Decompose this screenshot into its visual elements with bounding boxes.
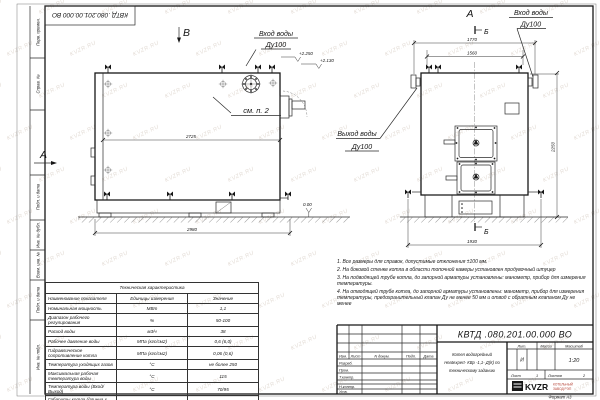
side-outlet-label: Выход воды <box>337 130 377 138</box>
top-stamp-doc-number: КВТД .080.201.00.000 ВО <box>52 11 128 18</box>
dim-front-overall-width: 1770 <box>467 37 478 42</box>
col-ndokum: N докум. <box>374 355 389 359</box>
cell-value: 70/95 <box>188 383 259 396</box>
technical-characteristics: Техническая характеристика Наименование … <box>45 282 259 400</box>
cell-units: м3/ч <box>117 327 188 337</box>
cell-name: Максимальная рабочая температура воды <box>46 370 117 383</box>
dim-side-inner-length: 2725 <box>185 134 197 139</box>
dim-front-base-width: 1930 <box>467 239 478 244</box>
table-row: Максимальная рабочая температура воды °С… <box>46 370 259 383</box>
cell-value: 38 <box>188 327 259 337</box>
product-name-line3: техническому заданию <box>449 368 496 373</box>
side-inlet-dn: Ду100 <box>265 42 286 49</box>
dim-front-fitting-span: 1560 <box>467 51 478 56</box>
note-1: 1. Все размеры для справок, допустимые о… <box>337 259 591 265</box>
upper-furnace-door <box>444 126 497 161</box>
lower-furnace-door <box>446 162 495 194</box>
sheet-label: Лист <box>510 374 521 378</box>
cell-value: не более 250 <box>188 360 259 370</box>
view-arrow-b-label: В <box>183 27 190 39</box>
note-2: 2. На боковой стенке котла в области топ… <box>337 267 591 273</box>
cell-name: Температура воды (Вход/Выход) <box>46 383 117 396</box>
row-razrab: Разраб. <box>339 362 353 366</box>
cell-name: Расход воды <box>46 327 117 337</box>
margin-label-2: Подп. и дата <box>36 183 41 210</box>
note-4: 4. На отводящей трубе котла, до запорной… <box>337 289 591 308</box>
format-note: Формат А3 <box>549 395 573 400</box>
margin-label-4: Взам. инв. № <box>36 252 41 278</box>
table-row: Рабочее давление воды МПа (кгс/см2) 0,6 … <box>46 337 259 347</box>
cell-name: Гидравлическое сопротивление котла <box>46 347 117 360</box>
header-units: Единицы измерения <box>117 294 188 304</box>
elevation-2250: +2.250 <box>299 51 313 56</box>
margin-label-1: Справ. № <box>36 74 41 93</box>
table-row: Расход воды м3/ч 38 <box>46 327 259 337</box>
row-tkontr: Т.контр. <box>339 376 354 380</box>
title-block: КВТД .080.201.00.000 ВО Изм. Лист N доку… <box>337 325 593 394</box>
margin-label-0: Перв. примен. <box>36 18 41 46</box>
kvzr-logo: KVZR КОТЕЛЬНЫЙ ЗАВОД РЭП <box>512 381 574 392</box>
cell-units: МПа (кгс/см2) <box>117 337 188 347</box>
cell-value: 0,6 (6,0) <box>188 337 259 347</box>
notes-block: 1. Все размеры для справок, допустимые о… <box>337 259 591 309</box>
front-view-label: А <box>465 8 473 20</box>
cell-units: мм <box>117 396 188 400</box>
dim-side-overall-length: 2980 <box>186 227 198 232</box>
col-izm: Изм. <box>339 355 347 359</box>
sheet-value: 1 <box>536 374 538 378</box>
cell-value: 115 <box>188 370 259 383</box>
cell-name: Габариты котла (длинна х ширина х высота… <box>46 396 117 400</box>
row-prov: Пров. <box>339 369 349 373</box>
table-row: Температура уходящих газов °С не более 2… <box>46 360 259 370</box>
side-outlet-dn: Ду100 <box>351 144 372 151</box>
scale-label: Масштаб <box>565 345 584 349</box>
table-row: Габариты котла (длинна х ширина х высота… <box>46 396 259 400</box>
section-arrow-a-label: А <box>39 149 47 161</box>
lit-label: Лит. <box>517 345 527 349</box>
logo-text: KVZR <box>525 382 548 392</box>
lit-value: И <box>520 358 524 364</box>
cell-name: Диапазон рабочего регулирования <box>46 314 117 327</box>
col-podp: Подп. <box>406 355 416 359</box>
front-inlet-label: Вход воды <box>514 9 549 17</box>
cell-units: МВт <box>117 304 188 314</box>
table-title-row: Техническая характеристика <box>46 283 259 294</box>
boiler-front-view: А Б Б <box>400 8 568 248</box>
product-name-line1: Котел водогрейный <box>452 352 493 357</box>
cell-units: °С <box>117 383 188 396</box>
table-row: Номинальная мощность МВт 1,1 <box>46 304 259 314</box>
col-list: Лист <box>350 355 361 359</box>
tech-table: Техническая характеристика Наименование … <box>45 282 259 400</box>
sheets-label: Листов <box>547 374 562 378</box>
header-name: Наименование показателя <box>46 294 117 304</box>
margin-label-5: Подп. и дата <box>36 286 41 313</box>
col-data: Дата <box>422 355 433 359</box>
table-title: Техническая характеристика <box>46 283 259 294</box>
mass-label: Масса <box>540 345 551 349</box>
cell-value: 2980х1930х2250 <box>188 396 259 400</box>
cell-value: 50-100 <box>188 314 259 327</box>
elevation-2130: +2.130 <box>320 58 334 63</box>
table-row: Гидравлическое сопротивление котла МПа (… <box>46 347 259 360</box>
margin-label-6: Инв. № подл. <box>36 344 41 370</box>
titleblock-doc-number: КВТД .080.201.00.000 ВО <box>458 330 572 340</box>
logo-subtext-1: КОТЕЛЬНЫЙ <box>553 383 574 387</box>
row-utv: Утв. <box>339 390 348 394</box>
table-header-row: Наименование показателя Единицы измерени… <box>46 294 259 304</box>
cell-value: 0,06 (0,6) <box>188 347 259 360</box>
table-row: Температура воды (Вход/Выход) °С 70/95 <box>46 383 259 396</box>
cell-units: % <box>117 314 188 327</box>
boiler-side-view: 2725 2980 В А Вход воды Ду100 +2.250 +2 <box>34 27 417 236</box>
note-3: 3. На подводящей трубе котла, до запорно… <box>337 275 591 288</box>
drawing-page: KVZR.RUKVZR.RUKVZR.RUKVZR.RUKVZR.RUKVZR.… <box>0 0 600 400</box>
product-name-line2: Heatexpert- КВр -1,1- Д(К) по <box>444 360 500 365</box>
flange-port <box>241 74 261 94</box>
dim-front-height: 2250 <box>551 141 556 153</box>
cell-units: °С <box>117 360 188 370</box>
cell-name: Температура уходящих газов <box>46 360 117 370</box>
see-note-2-ref: см. п. 2 <box>243 106 269 115</box>
side-inlet-label: Вход воды <box>259 30 294 38</box>
cell-units: °С <box>117 370 188 383</box>
cell-name: Рабочее давление воды <box>46 337 117 347</box>
cell-units: МПа (кгс/см2) <box>117 347 188 360</box>
elevation-zero: 0.00 <box>303 202 312 207</box>
cell-name: Номинальная мощность <box>46 304 117 314</box>
logo-subtext-2: ЗАВОД РЭП <box>553 387 572 391</box>
row-nkontr: Н.контр. <box>339 385 355 389</box>
scale-value: 1:20 <box>569 358 581 364</box>
sheets-value: 2 <box>582 374 586 378</box>
margin-label-3: Инв. № дубл. <box>36 222 41 248</box>
section-b-bottom-label: Б <box>484 229 489 236</box>
cell-value: 1,1 <box>188 304 259 314</box>
table-row: Диапазон рабочего регулирования % 50-100 <box>46 314 259 327</box>
front-inlet-dn: Ду100 <box>520 22 541 29</box>
header-value: Значение <box>188 294 259 304</box>
section-b-top-label: Б <box>484 29 489 36</box>
